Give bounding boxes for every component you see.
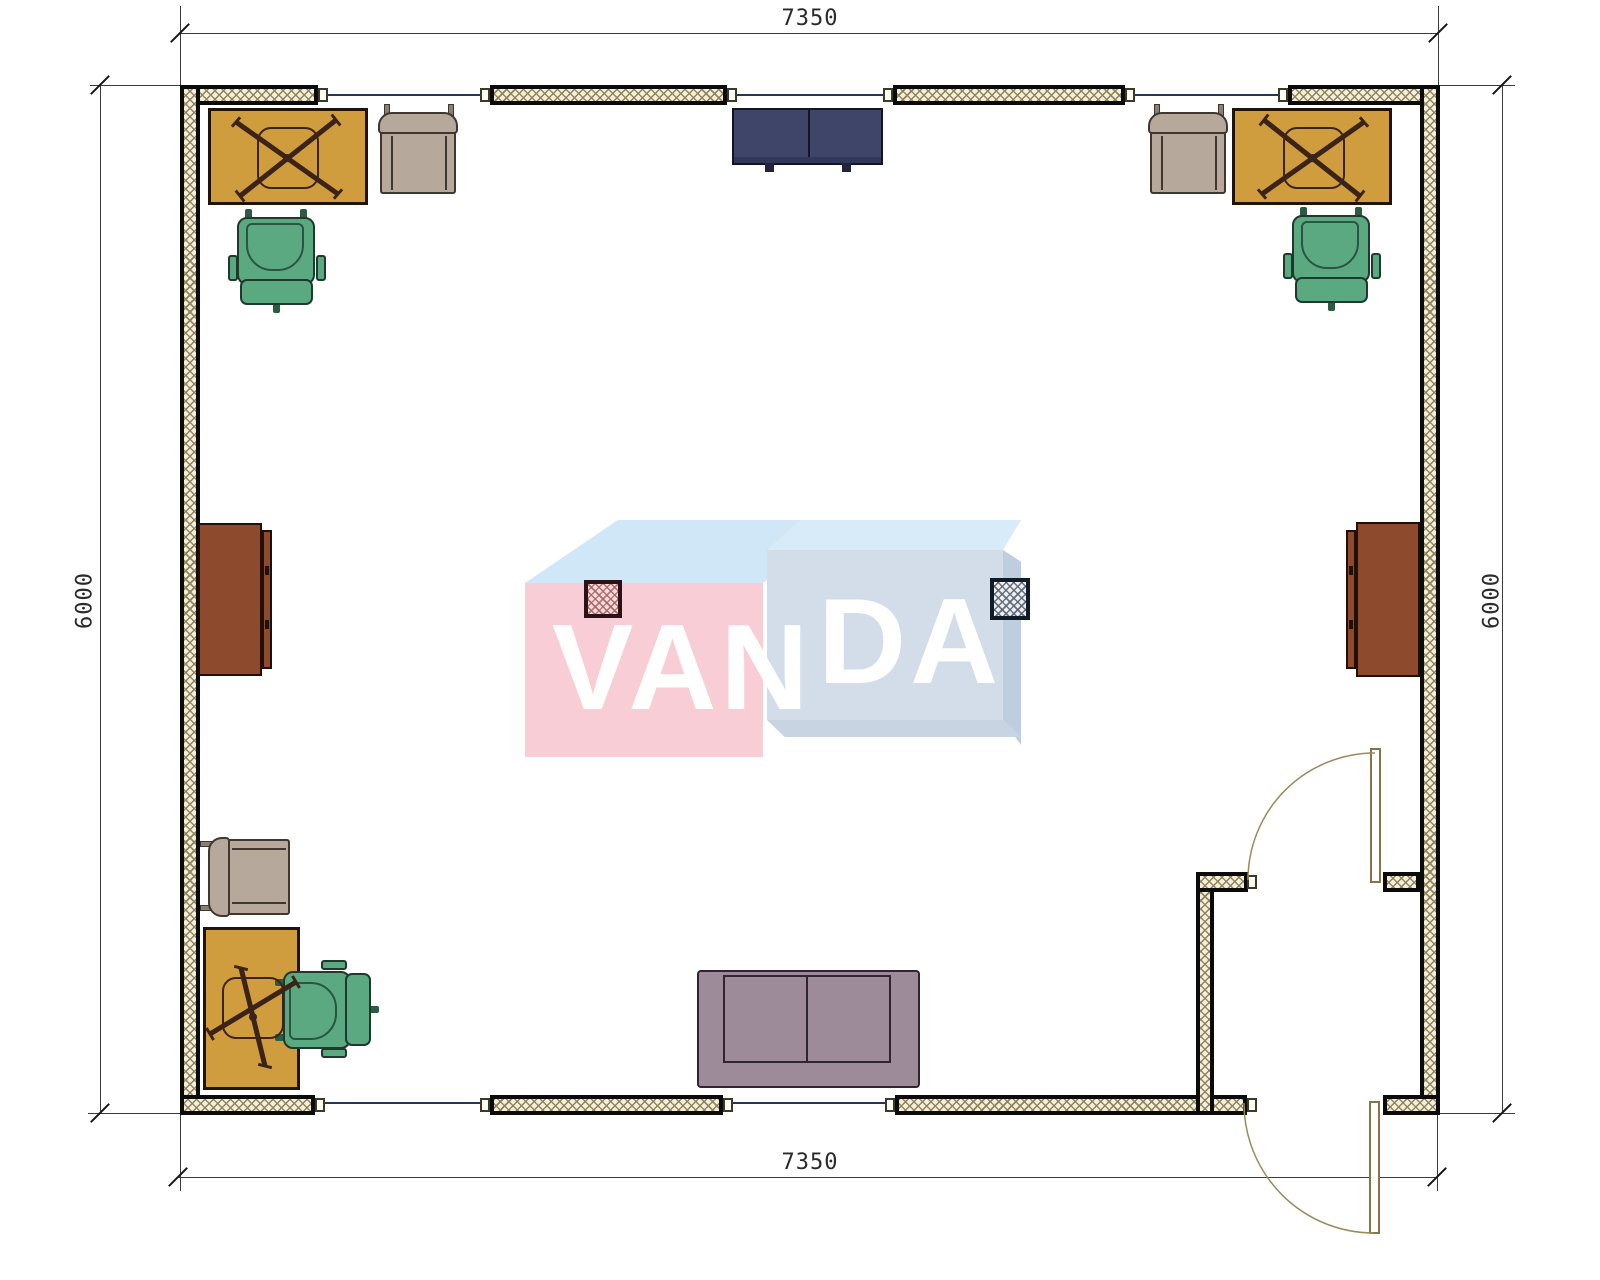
guest-chair-top-left: [378, 112, 462, 196]
column-blue: [990, 578, 1030, 620]
ext-line-bottom-left: [180, 1115, 181, 1191]
window-glass-line: [733, 1102, 885, 1104]
wall-bottom-segment: [180, 1095, 315, 1115]
watermark-text-van: VAN: [552, 606, 813, 728]
chair-back: [240, 279, 313, 305]
window-glass-line: [737, 94, 883, 96]
wall-bottom-segment: [1383, 1095, 1440, 1115]
dim-label-right: 6000: [1480, 561, 1505, 641]
chair-backband: [1148, 112, 1228, 134]
sideboard-right: [1356, 522, 1420, 677]
chair-arm-line: [232, 902, 286, 904]
chair-arm-line: [391, 136, 393, 190]
window-jamb: [1125, 88, 1135, 102]
cabinet-foot: [765, 163, 774, 172]
armrest: [321, 960, 347, 970]
wall-bottom-segment: [895, 1095, 1247, 1115]
vestibule-wall-vertical: [1196, 872, 1214, 1115]
wall-bottom-segment: [490, 1095, 723, 1115]
ext-line-right-top: [1440, 85, 1515, 86]
chair-back: [1295, 277, 1368, 303]
handle: [1349, 620, 1353, 629]
office-chair-top-left: [237, 215, 317, 307]
cabinet-base-strip: [734, 157, 881, 163]
dim-line-top: [180, 33, 1438, 34]
dim-label-top: 7350: [730, 6, 890, 31]
wall-top-segment: [893, 85, 1125, 105]
logo-right-top-face: [767, 520, 1021, 550]
watermark-text-da: DA: [818, 580, 1002, 702]
window-jamb: [885, 1098, 895, 1112]
dim-line-left: [100, 85, 101, 1113]
cabinet-divider: [808, 110, 810, 163]
wall-top-segment: [180, 85, 318, 105]
ext-line-left-bottom: [88, 1113, 180, 1114]
chair-seat-line: [1301, 221, 1359, 269]
chair-seat-line: [289, 982, 337, 1040]
armrest: [1371, 253, 1381, 279]
chair-seat-line: [246, 223, 304, 271]
ext-line-top-right: [1438, 6, 1439, 85]
ext-line-right-bottom: [1440, 1113, 1515, 1114]
dim-label-left: 6000: [73, 561, 98, 641]
interior-door-arc: [1248, 753, 1375, 880]
sideboard-left-front: [262, 530, 272, 669]
handle: [1349, 566, 1353, 575]
wall-left: [180, 85, 200, 1115]
door-jamb: [1247, 875, 1257, 889]
sideboard-left: [198, 523, 262, 676]
wall-top-segment: [490, 85, 727, 105]
window-jamb: [315, 1098, 325, 1112]
ext-line-bottom-right: [1437, 1115, 1438, 1191]
armrest: [321, 1048, 347, 1058]
office-chair-bottom-left: [281, 969, 373, 1049]
desk-top-left: [208, 108, 368, 205]
chair-arm-line: [1161, 136, 1163, 190]
desk-top-right: [1232, 108, 1392, 205]
chair-backband: [208, 837, 230, 917]
chair-arm-line: [232, 848, 286, 850]
wall-top-segment: [1288, 85, 1438, 105]
chair-arm-line: [445, 136, 447, 190]
handle: [265, 566, 269, 575]
window-jamb: [318, 88, 328, 102]
door-leaf-exterior: [1369, 1101, 1380, 1234]
guest-chair-top-right: [1148, 112, 1232, 196]
sofa: [697, 970, 920, 1088]
handle: [265, 620, 269, 629]
vestibule-wall-stub-left: [1196, 872, 1248, 892]
window-jamb: [480, 1098, 490, 1112]
vestibule-wall-stub-right: [1383, 872, 1420, 892]
door-swing-arcs: [1244, 753, 1375, 1233]
exterior-door-arc: [1244, 1103, 1374, 1233]
guest-chair-bottom-left: [208, 833, 292, 917]
window-jamb: [1278, 88, 1288, 102]
window-glass-line: [1135, 94, 1278, 96]
chair-back: [345, 973, 371, 1046]
floor-plan-canvas: VAN DA 7350 7350 6000 6000: [0, 0, 1600, 1280]
cabinet-navy: [732, 108, 883, 165]
window-jamb: [480, 88, 490, 102]
sideboard-right-front: [1346, 530, 1356, 669]
door-jamb: [1247, 1098, 1257, 1112]
window-glass-line: [325, 1102, 480, 1104]
ext-line-left-top: [90, 85, 180, 86]
dim-label-bottom: 7350: [730, 1150, 890, 1175]
ext-line-top-left: [180, 6, 181, 85]
office-chair-top-right: [1292, 213, 1372, 305]
cabinet-foot: [842, 163, 851, 172]
chair-arm-line: [1215, 136, 1217, 190]
window-jamb: [727, 88, 737, 102]
window-jamb: [883, 88, 893, 102]
wall-right: [1420, 85, 1440, 1115]
column-pink: [584, 580, 622, 618]
window-jamb: [723, 1098, 733, 1112]
door-leaf-interior: [1370, 748, 1381, 883]
sofa-seat-divider: [806, 975, 808, 1063]
chair-backband: [378, 112, 458, 134]
armrest: [316, 255, 326, 281]
vanda-watermark: VAN DA: [500, 490, 1060, 770]
dim-line-bottom: [178, 1177, 1437, 1178]
window-glass-line: [328, 94, 480, 96]
